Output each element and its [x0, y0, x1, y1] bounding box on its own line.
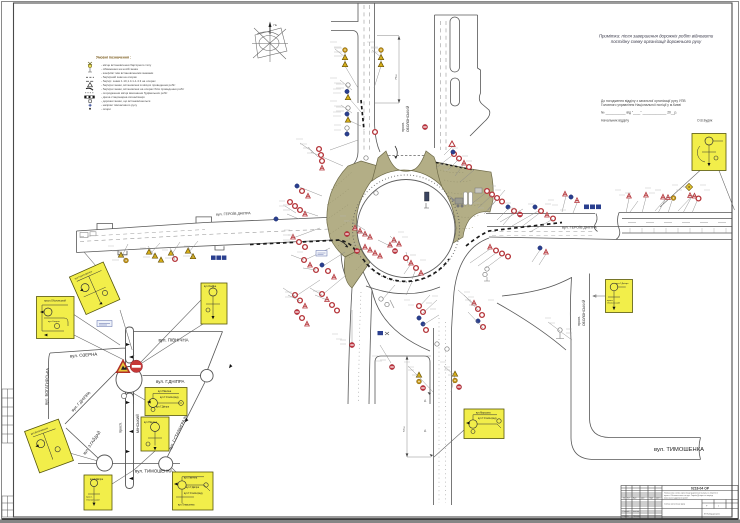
svg-text:просп.: просп.	[86, 497, 93, 499]
svg-text:Схема органiзацiї руху: Схема органiзацiї руху	[664, 504, 685, 506]
svg-text:просп.Оболонський: просп.Оболонський	[44, 300, 67, 303]
svg-text:вул. ГЕРОЇВ ДНІПРА: вул. ГЕРОЇВ ДНІПРА	[562, 226, 597, 230]
svg-text:Док: Док	[641, 498, 644, 500]
svg-text:КП Київдорсервiс: КП Київдорсервiс	[704, 514, 720, 516]
svg-text:вул.Г.Днiпра: вул.Г.Днiпра	[156, 407, 170, 409]
svg-text:вул. ТИМОШЕНКА: вул. ТИМОШЕНКА	[135, 469, 173, 474]
svg-text:ОБОЛОНСЬКИЙ: ОБОЛОНСЬКИЙ	[582, 299, 586, 326]
svg-text:57м: 57м	[402, 427, 406, 432]
svg-text:вул.Г.Днiпра: вул.Г.Днiпра	[616, 283, 629, 285]
svg-text:Пiдп: Пiдп	[649, 498, 653, 500]
svg-text:МІНСЬКИЙ: МІНСЬКИЙ	[136, 414, 140, 433]
svg-text:вул.Пiвнiчна: вул.Пiвнiчна	[158, 391, 172, 393]
svg-text:постiйну схему органiзацiї дор: постiйну схему органiзацiї дорожнього ру…	[611, 39, 702, 44]
svg-text:вул.Озерна: вул.Озерна	[48, 321, 60, 323]
svg-text:ОБОЛОНСЬКИЙ: ОБОЛОНСЬКИЙ	[406, 105, 410, 132]
svg-text:Перев.: Перев.	[623, 516, 630, 518]
svg-text:Iванов: Iванов	[633, 511, 639, 513]
svg-text:вул. ПІВНІЧНА: вул. ПІВНІЧНА	[159, 338, 189, 343]
svg-text:- опори: - опори	[101, 107, 111, 111]
svg-text:75м: 75м	[394, 75, 398, 80]
svg-text:Умовнi позначення :: Умовнi позначення :	[96, 56, 131, 60]
svg-text:вул.Тимошенка: вул.Тимошенка	[178, 505, 195, 507]
svg-text:просп.: просп.	[401, 122, 405, 132]
svg-text:виконання дорожнiх робiт: виконання дорожнiх робiт	[664, 497, 688, 499]
svg-text:вул.Маршала: вул.Маршала	[476, 413, 491, 415]
svg-text:Арк: Арк	[633, 497, 636, 500]
svg-text:№ ___________ вiд "____" _____: № ___________ вiд "____" _____________ 2…	[601, 111, 677, 115]
svg-text:вул.Г.Днiпра: вул.Г.Днiпра	[90, 479, 104, 481]
svg-text:вул.Г.Сталiнграду: вул.Г.Сталiнграду	[160, 397, 180, 399]
svg-text:Головного управлiння Нацiональ: Головного управлiння Нацiональної полiцi…	[601, 103, 681, 107]
svg-text:Примiтка: пiсля завершення дор: Примiтка: пiсля завершення дорожнiх робi…	[599, 34, 714, 39]
svg-text:вул.Пiвнiчна: вул.Пiвнiчна	[184, 478, 198, 480]
svg-text:Оболонський: Оболонський	[86, 498, 100, 501]
svg-text:вул.Г.Сталiнграду: вул.Г.Сталiнграду	[478, 418, 498, 420]
svg-text:вул. Г.ДНІПРА: вул. Г.ДНІПРА	[156, 379, 185, 384]
svg-text:вул.Г.Днiпра: вул.Г.Днiпра	[186, 487, 200, 489]
svg-text:Розроб.: Розроб.	[623, 511, 631, 513]
svg-text:Петров: Петров	[633, 516, 640, 518]
svg-text:Пн: Пн	[274, 23, 278, 27]
svg-text:просп.: просп.	[577, 316, 581, 326]
svg-text:Начальник вiддiлу: Начальник вiддiлу	[601, 119, 629, 123]
svg-text:0218-04 ОР: 0218-04 ОР	[691, 487, 710, 491]
svg-text:Оболонський: Оболонський	[607, 302, 621, 305]
svg-text:вул.Пiвнiчна: вул.Пiвнiчна	[144, 422, 158, 424]
svg-text:вул. ТИМОШЕНКА: вул. ТИМОШЕНКА	[654, 447, 704, 453]
svg-text:просп.: просп.	[119, 422, 123, 433]
svg-text:О.В.Будяк: О.В.Будяк	[697, 119, 713, 123]
svg-text:вул.Озерна: вул.Озерна	[204, 286, 217, 288]
svg-text:вул.Г.Сталiнграду: вул.Г.Сталiнграду	[184, 493, 204, 495]
